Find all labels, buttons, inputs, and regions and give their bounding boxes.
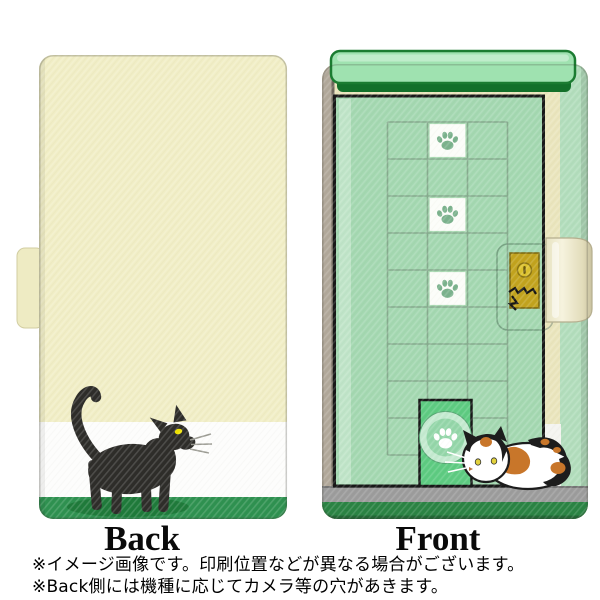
front-case: [322, 51, 592, 519]
back-fabric-texture: [39, 55, 287, 519]
note-line-1: ※イメージ画像です。印刷位置などが異なる場合がございます。: [32, 555, 598, 577]
awning: [331, 51, 575, 92]
back-case: [17, 55, 287, 519]
front-label: Front: [288, 519, 588, 559]
clasp-strap: [546, 238, 592, 322]
phone-case-illustration: [0, 0, 600, 600]
note-line-2: ※Back側には機種に応じてカメラ等の穴があきます。: [32, 577, 598, 599]
back-label: Back: [0, 519, 284, 559]
disclaimer-notes: ※イメージ画像です。印刷位置などが異なる場合がございます。 ※Back側には機種…: [32, 555, 598, 598]
calico-forehead-patch: [480, 437, 492, 447]
product-image: Back Front ※イメージ画像です。印刷位置などが異なる場合がございます。…: [0, 0, 600, 600]
